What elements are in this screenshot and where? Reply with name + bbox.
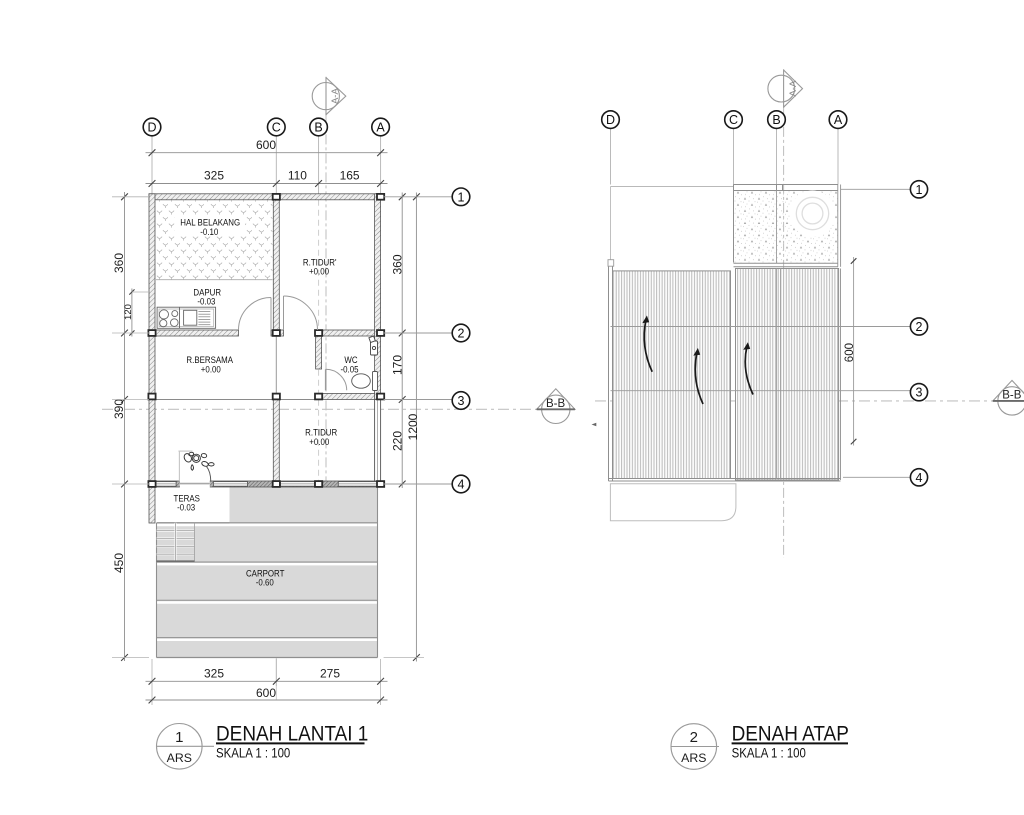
- svg-text:A-A: A-A: [330, 88, 341, 105]
- svg-text:2: 2: [690, 729, 698, 746]
- svg-text:1: 1: [175, 729, 183, 746]
- svg-text:390: 390: [112, 399, 126, 419]
- svg-text:275: 275: [320, 667, 340, 681]
- svg-text:C: C: [729, 113, 738, 127]
- svg-text:-0.10: -0.10: [200, 226, 218, 237]
- svg-text:450: 450: [112, 553, 126, 573]
- svg-text:600: 600: [256, 686, 276, 700]
- svg-text:B-B: B-B: [546, 398, 566, 410]
- svg-text:110: 110: [288, 169, 307, 183]
- svg-text:C: C: [272, 121, 281, 135]
- svg-text:DENAH LANTAI 1: DENAH LANTAI 1: [216, 723, 368, 746]
- svg-text:4: 4: [458, 478, 465, 492]
- svg-text:B-B: B-B: [1002, 389, 1022, 401]
- svg-text:A-A: A-A: [788, 80, 799, 97]
- svg-text:1: 1: [458, 190, 465, 204]
- svg-text:D: D: [606, 113, 615, 127]
- svg-text:+0.00: +0.00: [309, 436, 329, 447]
- svg-text:B: B: [314, 121, 322, 135]
- svg-text:325: 325: [204, 667, 224, 681]
- svg-text:A: A: [834, 113, 843, 127]
- svg-text:600: 600: [256, 138, 276, 152]
- svg-text:165: 165: [340, 169, 360, 183]
- svg-text:600: 600: [844, 343, 856, 362]
- svg-text:-0.05: -0.05: [340, 364, 358, 375]
- svg-text:SKALA 1 : 100: SKALA 1 : 100: [216, 744, 290, 760]
- svg-text:+0.00: +0.00: [309, 266, 329, 277]
- svg-text:ARS: ARS: [167, 751, 192, 765]
- svg-text:D: D: [147, 121, 156, 135]
- svg-text:2: 2: [458, 327, 465, 341]
- svg-text:SKALA 1 : 100: SKALA 1 : 100: [732, 744, 806, 760]
- svg-text:1200: 1200: [406, 413, 420, 440]
- svg-text:-0.60: -0.60: [256, 577, 274, 588]
- svg-text:A: A: [376, 121, 385, 135]
- svg-text:ARS: ARS: [681, 751, 706, 765]
- svg-text:360: 360: [390, 254, 404, 274]
- svg-text:325: 325: [204, 169, 224, 183]
- svg-text:-0.03: -0.03: [197, 296, 215, 307]
- svg-text:3: 3: [458, 394, 465, 408]
- svg-text:170: 170: [390, 355, 404, 375]
- svg-text:1: 1: [916, 183, 923, 197]
- svg-text:220: 220: [390, 431, 404, 451]
- svg-text:-0.03: -0.03: [177, 502, 195, 513]
- svg-text:2: 2: [916, 320, 923, 334]
- svg-text:120: 120: [123, 304, 134, 320]
- svg-text:3: 3: [916, 386, 923, 400]
- svg-text:+0.00: +0.00: [201, 364, 221, 375]
- svg-text:360: 360: [112, 253, 126, 273]
- svg-text:B: B: [772, 113, 780, 127]
- svg-text:4: 4: [916, 471, 923, 485]
- svg-text:DENAH ATAP: DENAH ATAP: [732, 723, 849, 746]
